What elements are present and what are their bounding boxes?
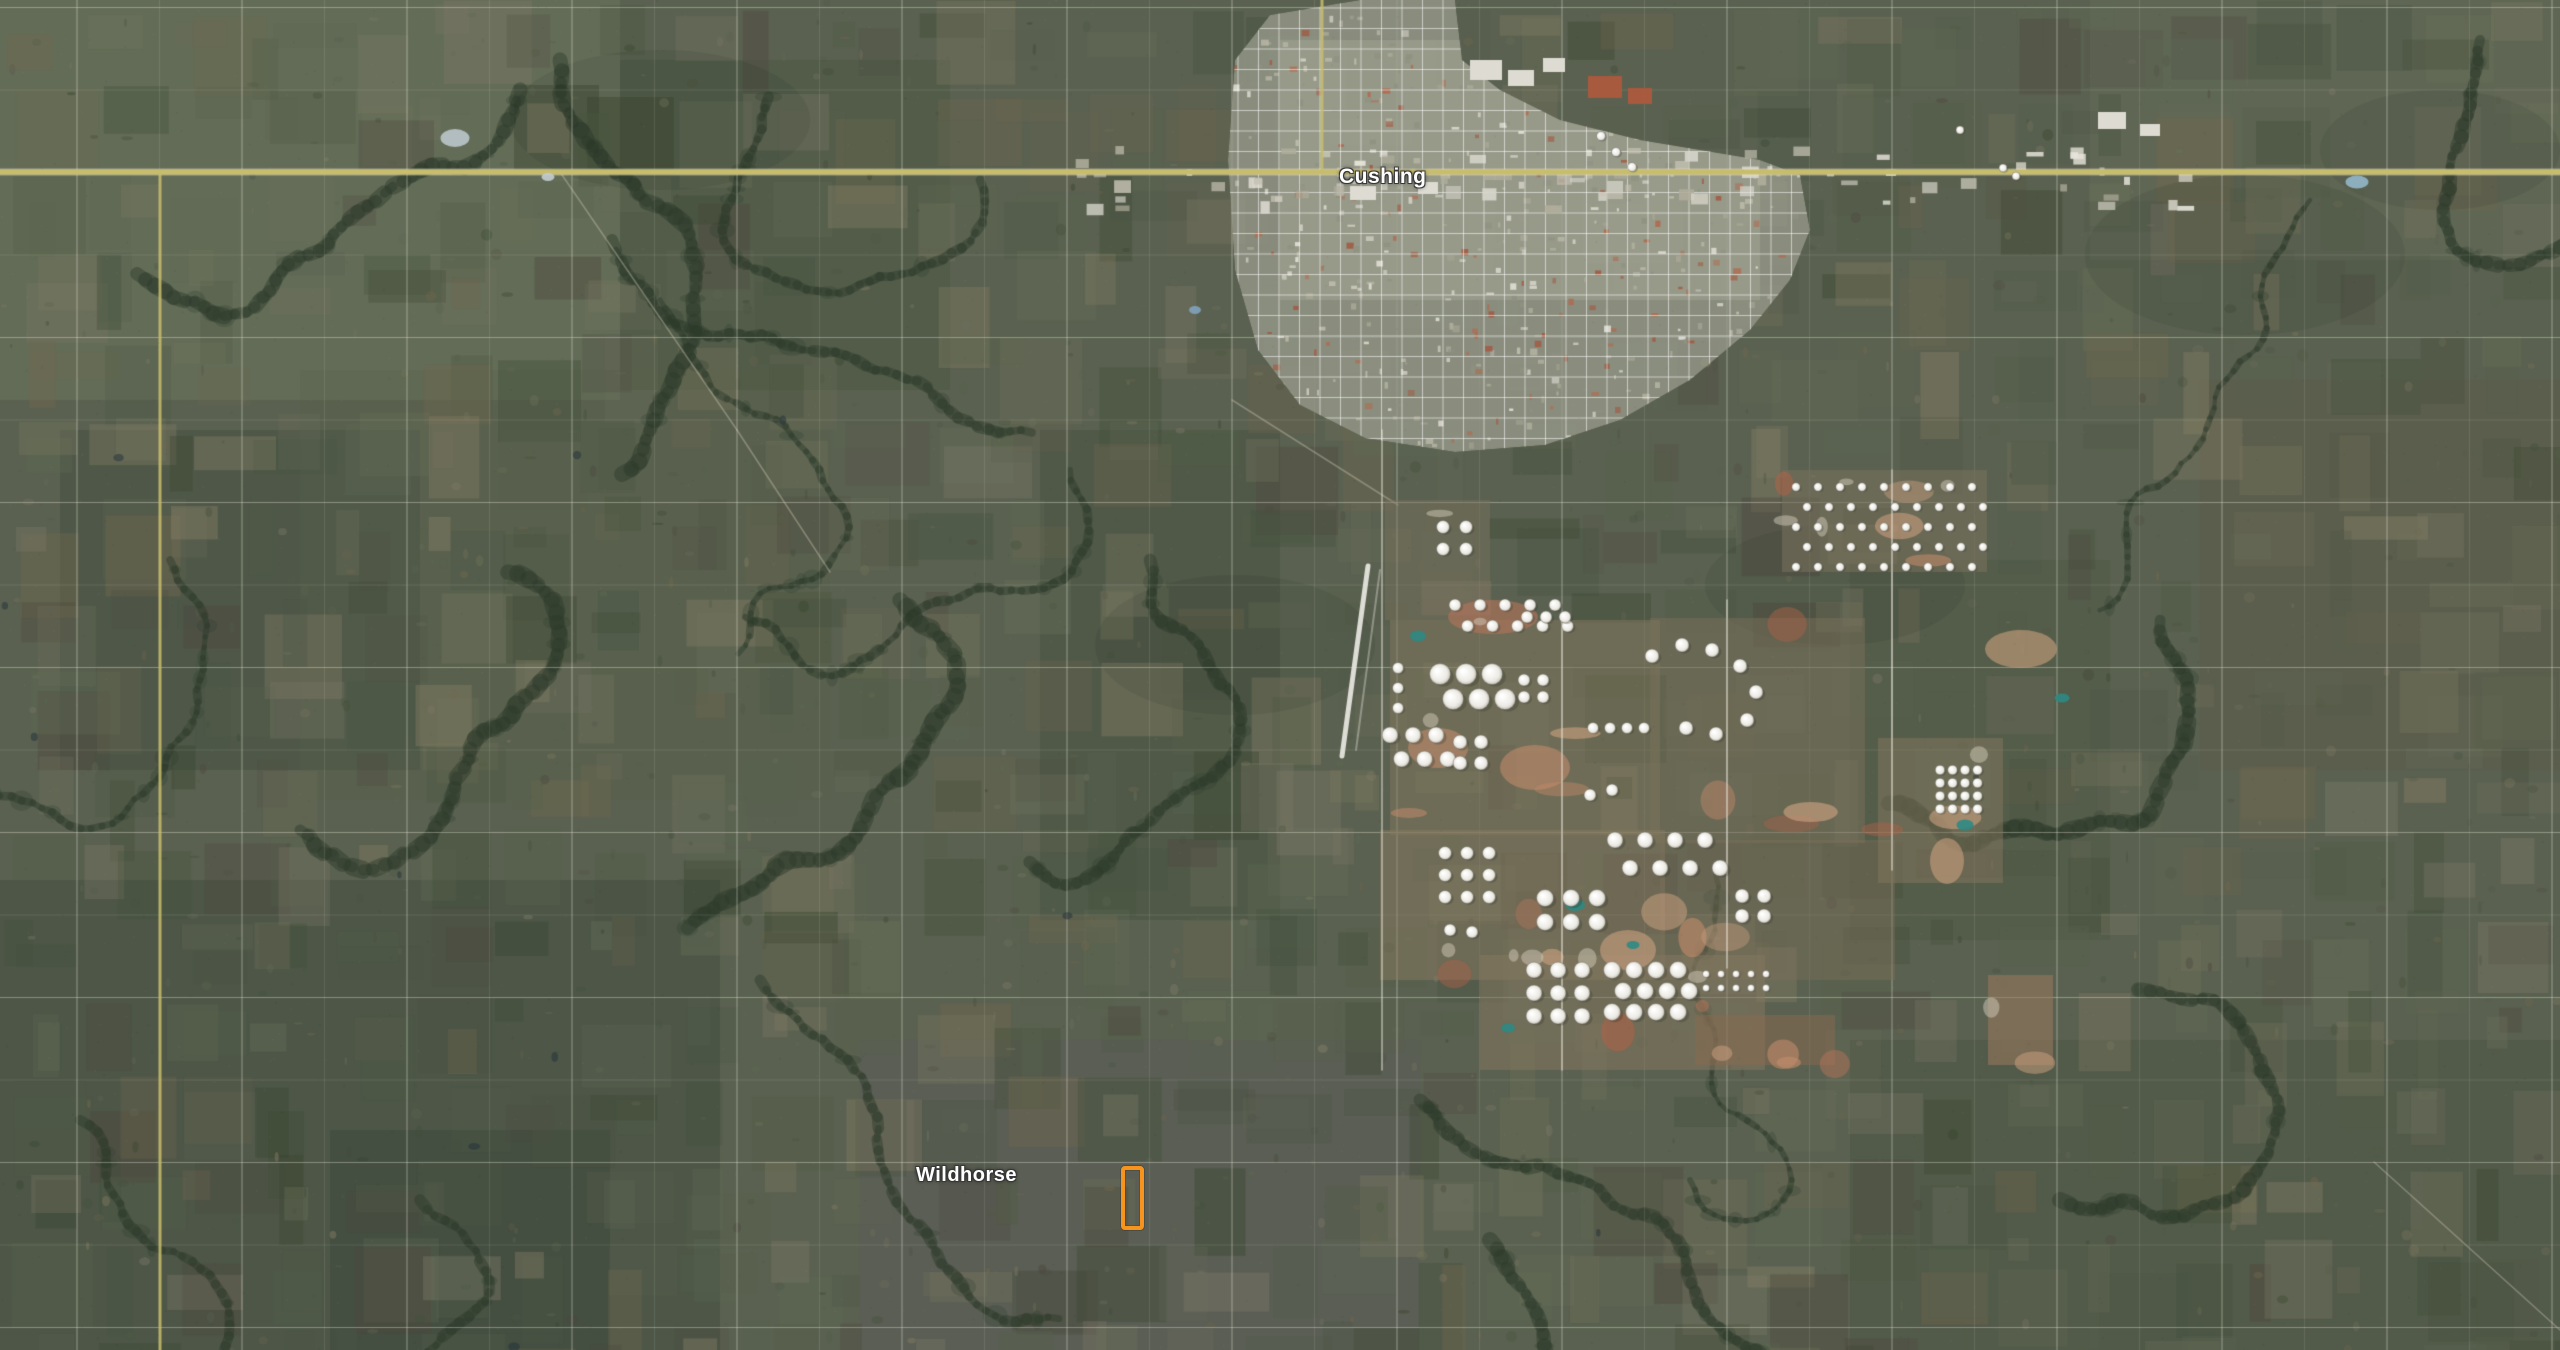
satellite-map[interactable]: Cushing Wildhorse xyxy=(0,0,2560,1350)
map-label-cushing: Cushing xyxy=(1339,165,1427,189)
parcel-highlight-marker[interactable] xyxy=(1121,1166,1144,1230)
satellite-imagery-canvas xyxy=(0,0,2560,1350)
map-label-wildhorse: Wildhorse xyxy=(916,1164,1017,1187)
